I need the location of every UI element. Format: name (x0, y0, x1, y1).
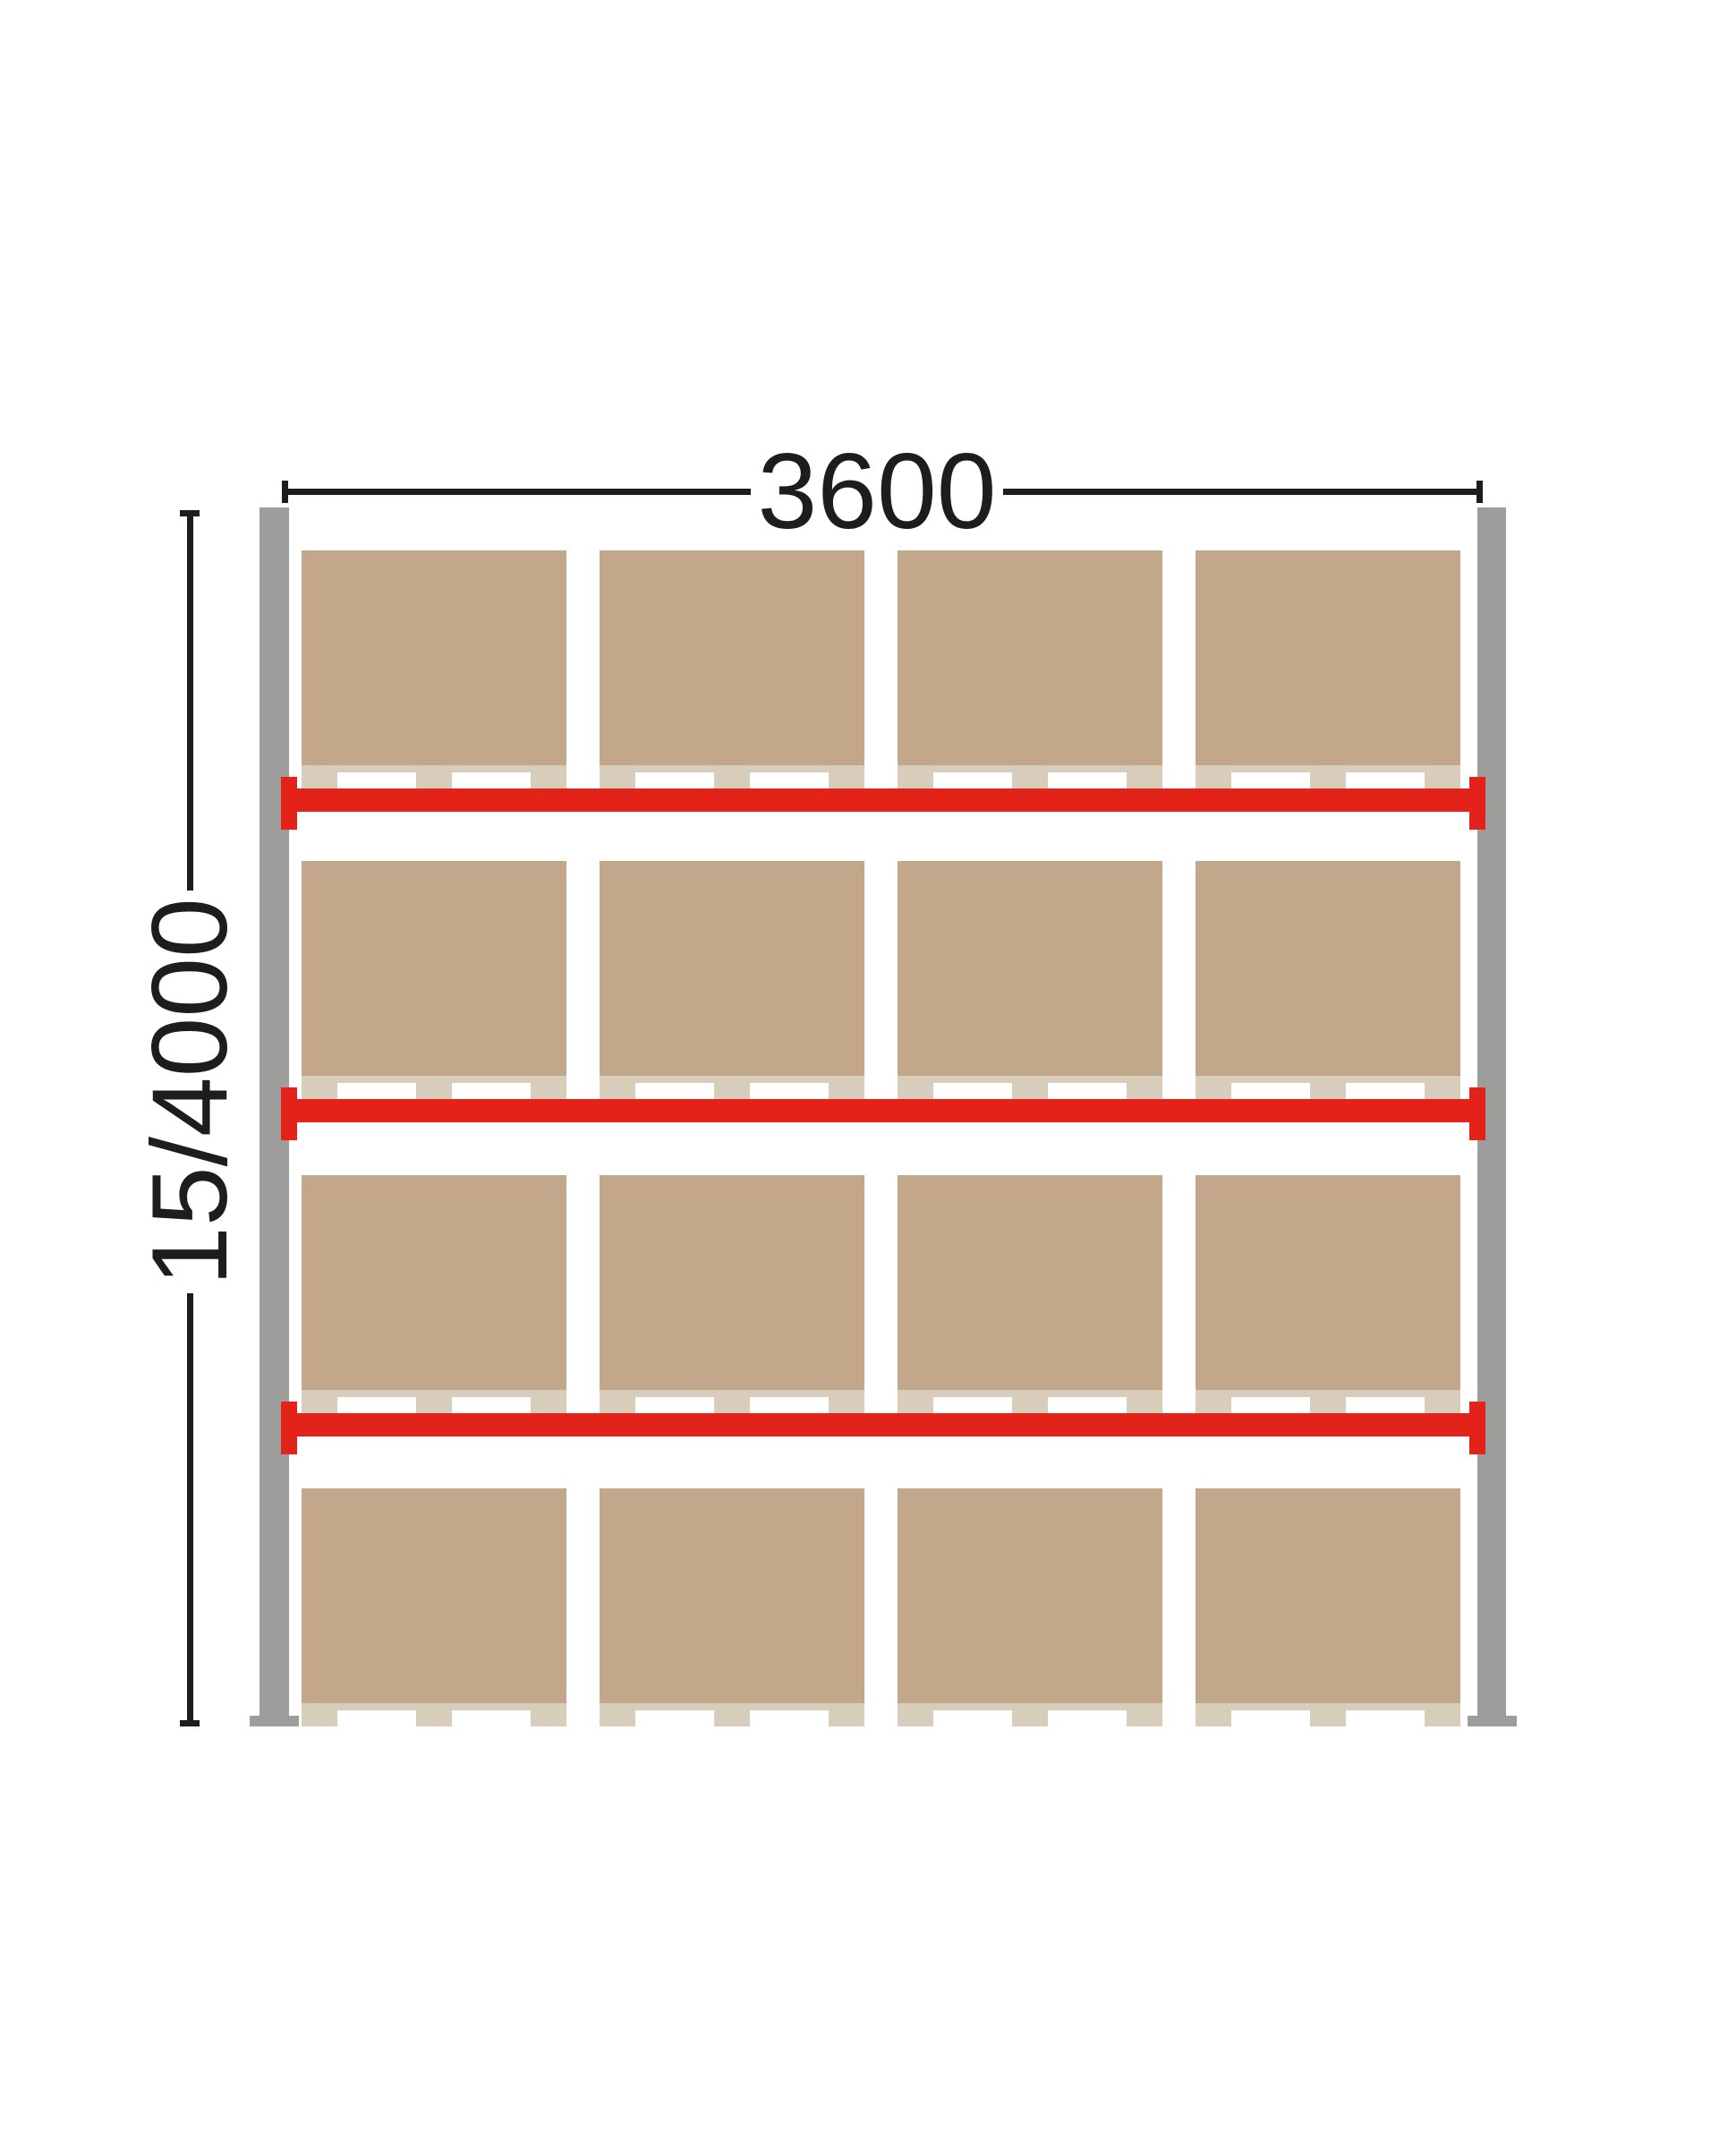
pallet-foot (600, 772, 635, 788)
pallet-deck (302, 765, 566, 772)
pallet-rack-diagram: 3600 15/4000 (0, 0, 1736, 2148)
beam-end-bracket-right (1469, 1402, 1485, 1454)
pallet-foot (898, 1397, 933, 1413)
pallet-box (1196, 1175, 1460, 1390)
pallet-foot (1425, 1710, 1460, 1726)
pallet-deck (302, 1703, 566, 1710)
pallet-deck (600, 1076, 864, 1083)
pallet-foot (1012, 1397, 1048, 1413)
upright-left-foot (250, 1716, 299, 1726)
pallet-foot (416, 1710, 452, 1726)
pallet-foot (302, 1083, 337, 1099)
pallet-box (600, 861, 864, 1076)
width-dimension-line-left (282, 489, 751, 495)
pallet-box (1196, 861, 1460, 1076)
pallet-box (898, 550, 1162, 765)
pallet-foot (302, 1710, 337, 1726)
beam-end-bracket-left (281, 1087, 297, 1140)
pallet-box (302, 1175, 566, 1390)
pallet-foot (829, 1083, 864, 1099)
pallet-foot (416, 1397, 452, 1413)
pallet-box (898, 1488, 1162, 1703)
pallet-foot (1012, 1710, 1048, 1726)
pallet-deck (898, 1703, 1162, 1710)
pallet-foot (1127, 1083, 1162, 1099)
pallet-deck (600, 765, 864, 772)
pallet-foot (302, 1397, 337, 1413)
pallet-foot (1196, 772, 1231, 788)
pallet-deck (1196, 1390, 1460, 1397)
pallet-foot (1310, 1397, 1346, 1413)
pallet-box (600, 550, 864, 765)
pallet-foot (531, 1710, 566, 1726)
width-dimension-tick-left (282, 481, 288, 503)
pallet-deck (302, 1076, 566, 1083)
pallet-foot (600, 1397, 635, 1413)
pallet-foot (898, 1710, 933, 1726)
pallet-deck (302, 1390, 566, 1397)
pallet-deck (898, 765, 1162, 772)
beam-end-bracket-left (281, 777, 297, 830)
pallet-foot (898, 772, 933, 788)
pallet-foot (714, 1710, 750, 1726)
pallet-box (302, 550, 566, 765)
pallet-foot (714, 1397, 750, 1413)
pallet-foot (829, 1397, 864, 1413)
pallet-foot (829, 772, 864, 788)
pallet-foot (898, 1083, 933, 1099)
pallet-foot (1127, 772, 1162, 788)
pallet-foot (600, 1083, 635, 1099)
pallet-box (1196, 550, 1460, 765)
pallet-box (302, 861, 566, 1076)
height-dimension-label: 15/4000 (136, 898, 243, 1286)
pallet-foot (714, 1083, 750, 1099)
pallet-foot (1425, 1083, 1460, 1099)
pallet-foot (1012, 1083, 1048, 1099)
pallet-deck (1196, 765, 1460, 772)
pallet-foot (1310, 1083, 1346, 1099)
height-dimension-cap-bottom (180, 1720, 200, 1726)
pallet-foot (1127, 1397, 1162, 1413)
beam-end-bracket-right (1469, 777, 1485, 830)
pallet-foot (1425, 1397, 1460, 1413)
pallet-foot (600, 1710, 635, 1726)
width-dimension-label: 3600 (758, 438, 997, 545)
pallet-deck (1196, 1703, 1460, 1710)
height-dimension-line-bottom (187, 1293, 193, 1726)
pallet-foot (416, 772, 452, 788)
pallet-foot (829, 1710, 864, 1726)
pallet-deck (1196, 1076, 1460, 1083)
pallet-box (898, 1175, 1162, 1390)
pallet-deck (600, 1390, 864, 1397)
beam (297, 788, 1469, 812)
pallet-foot (531, 1083, 566, 1099)
pallet-foot (531, 1397, 566, 1413)
pallet-foot (1310, 1710, 1346, 1726)
pallet-foot (416, 1083, 452, 1099)
pallet-foot (1196, 1397, 1231, 1413)
pallet-box (600, 1175, 864, 1390)
pallet-box (898, 861, 1162, 1076)
height-dimension-line-top (187, 510, 193, 891)
pallet-foot (1425, 772, 1460, 788)
beam-end-bracket-left (281, 1402, 297, 1454)
pallet-deck (600, 1703, 864, 1710)
width-dimension-tick-right (1476, 481, 1483, 503)
pallet-deck (898, 1390, 1162, 1397)
pallet-deck (898, 1076, 1162, 1083)
upright-right-foot (1468, 1716, 1517, 1726)
pallet-box (600, 1488, 864, 1703)
beam (297, 1099, 1469, 1122)
pallet-foot (1310, 772, 1346, 788)
pallet-foot (531, 772, 566, 788)
pallet-foot (1127, 1710, 1162, 1726)
pallet-foot (714, 772, 750, 788)
pallet-foot (1196, 1083, 1231, 1099)
height-dimension-cap-top (180, 510, 200, 516)
width-dimension-line-right (1003, 489, 1483, 495)
beam-end-bracket-right (1469, 1087, 1485, 1140)
beam (297, 1413, 1469, 1436)
pallet-foot (1196, 1710, 1231, 1726)
pallet-box (302, 1488, 566, 1703)
pallet-box (1196, 1488, 1460, 1703)
pallet-foot (1012, 772, 1048, 788)
pallet-foot (302, 772, 337, 788)
